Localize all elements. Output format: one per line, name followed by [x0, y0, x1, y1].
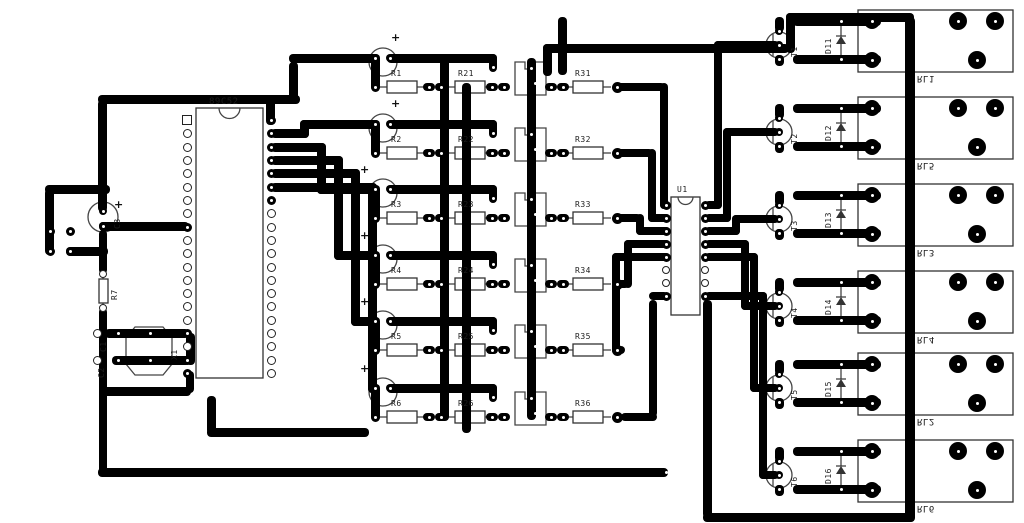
copper-trace: [705, 292, 767, 300]
copper-trace: [612, 253, 620, 354]
pad-hole: [840, 319, 843, 322]
resistor-body: [387, 344, 417, 356]
solder-pad: [371, 214, 380, 223]
resistor-label: R5: [391, 332, 402, 341]
solder-pad: [423, 83, 435, 91]
pad-hole: [840, 194, 843, 197]
solder-pad: [612, 213, 623, 224]
mcu-pin-pad: [183, 169, 192, 178]
copper-trace: [45, 189, 54, 255]
copper-trace: [617, 83, 665, 91]
copper-trace: [489, 54, 497, 72]
pad-hole: [840, 232, 843, 235]
relay-coil-pad: [864, 356, 880, 372]
resistor-label: R1: [391, 69, 402, 78]
pad-hole: [840, 58, 843, 61]
transistor-pad: [775, 302, 783, 310]
solder-pad: [545, 149, 557, 157]
copper-trace: [750, 253, 758, 392]
solder-pad: [99, 222, 107, 230]
mcu-pin-pad: [183, 209, 192, 218]
mcu-pin-pad: [267, 369, 276, 378]
relay-contact-pad: [949, 355, 967, 373]
solder-pad: [99, 207, 107, 215]
resistor-label: R21: [458, 69, 474, 78]
pad-hole: [534, 412, 537, 415]
pcb-layout: 89C52U1R7X1C1C2C3+R1R21R31+R2R22R32+R3R2…: [0, 0, 1024, 523]
relay-contact-pad: [968, 394, 986, 412]
relay-contact-pad: [949, 99, 967, 117]
relay-contact-pad: [968, 138, 986, 156]
solder-pad: [498, 149, 510, 157]
resistor-label: R35: [575, 332, 591, 341]
pad-hole: [534, 148, 537, 151]
solder-pad: [371, 54, 379, 62]
copper-trace: [527, 58, 536, 420]
resistor-body: [573, 81, 603, 93]
relay-contact-pad: [968, 481, 986, 499]
polarity-plus-mark: +: [114, 198, 123, 211]
diode-label: D12: [824, 125, 833, 141]
polarity-plus-mark: +: [360, 163, 369, 176]
transistor-pad: [775, 485, 783, 493]
resistor-label: R6: [391, 399, 402, 408]
relay-coil-pad: [864, 395, 880, 411]
relay-label: RL4: [917, 334, 935, 344]
copper-trace: [103, 387, 191, 396]
resistor-r7-label: R7: [110, 289, 119, 300]
copper-trace: [271, 156, 343, 165]
pad-hole: [530, 67, 533, 70]
solder-pad: [557, 83, 569, 91]
copper-trace: [387, 54, 497, 63]
crystal-pad: [114, 356, 122, 364]
mcu-pin-pad: [183, 356, 192, 365]
mcu-pin-pad: [267, 223, 276, 232]
solder-pad: [435, 413, 447, 421]
mcu-body: [196, 108, 263, 378]
pad-hole: [665, 471, 668, 474]
copper-trace: [98, 468, 668, 477]
solder-pad: [486, 280, 498, 288]
power-pad: [46, 247, 55, 256]
diode-label: D16: [824, 468, 833, 484]
relay-coil-pad: [864, 226, 880, 242]
copper-trace: [351, 169, 360, 326]
cap-c3-label: C3: [113, 218, 122, 229]
solder-pad: [371, 384, 379, 392]
resistor-body: [573, 212, 603, 224]
mcu-pin-pad: [183, 129, 192, 138]
polarity-plus-mark: +: [360, 229, 369, 242]
transistor-pad: [775, 142, 783, 150]
transistor-pad: [775, 457, 783, 465]
solder-pad: [557, 346, 569, 354]
polarity-plus-mark: +: [391, 31, 400, 44]
solder-pad: [498, 83, 510, 91]
solder-pad: [371, 280, 380, 289]
resistor-body: [573, 344, 603, 356]
u1-pin-pad: [701, 292, 710, 301]
transistor-pad: [775, 41, 783, 49]
mcu-pin-pad: [267, 156, 276, 165]
relay-contact-pad: [986, 355, 1004, 373]
solder-pad: [371, 120, 379, 128]
resistor-body: [573, 278, 603, 290]
solder-pad: [371, 317, 379, 325]
resistor-body: [387, 212, 417, 224]
copper-trace: [289, 62, 298, 104]
diode-label: D14: [824, 299, 833, 315]
mcu-pin-pad: [267, 316, 276, 325]
pad-hole: [530, 397, 533, 400]
solder-pad: [612, 148, 623, 159]
crystal-label: X1: [170, 349, 179, 360]
mcu-pin-pad: [267, 289, 276, 298]
mcu-pin-pad: [267, 249, 276, 258]
copper-trace: [387, 384, 497, 393]
cap-c2-pad: [93, 356, 102, 365]
power-pad: [66, 247, 75, 256]
mcu-pin-pad: [267, 263, 276, 272]
mcu-pin-pad: [183, 196, 192, 205]
polarity-plus-mark: +: [360, 295, 369, 308]
solder-pad: [371, 185, 379, 193]
solder-pad: [371, 149, 380, 158]
transistor-label: T3: [790, 220, 799, 231]
solder-pad: [486, 346, 498, 354]
solder-pad: [386, 120, 394, 128]
mcu-pin-pad: [267, 356, 276, 365]
pad-hole: [840, 20, 843, 23]
mcu-pin-pad: [183, 143, 192, 152]
u1-pin-pad: [662, 240, 671, 249]
diode-label: D15: [824, 381, 833, 397]
transistor-pad: [775, 128, 783, 136]
mcu-pin-pad: [267, 276, 276, 285]
u1-pin-pad: [662, 201, 671, 210]
copper-trace: [489, 317, 497, 335]
mcu-pin-pad: [267, 302, 276, 311]
mcu-pin-pad: [183, 156, 192, 165]
copper-trace: [714, 41, 722, 209]
relay-contact-pad: [986, 12, 1004, 30]
solder-pad: [486, 413, 498, 421]
polarity-plus-mark: +: [391, 97, 400, 110]
power-pad: [46, 227, 55, 236]
resistor-label: R3: [391, 200, 402, 209]
resistor-label: R31: [575, 69, 591, 78]
solder-pad: [371, 413, 380, 422]
mcu-pin1-pad: [182, 115, 192, 125]
solder-pad: [486, 149, 498, 157]
copper-trace: [732, 215, 779, 223]
transistor-label: T2: [790, 133, 799, 144]
crystal-pad: [114, 329, 122, 337]
copper-trace: [660, 83, 668, 209]
resistor-body: [573, 147, 603, 159]
solder-pad: [545, 413, 557, 421]
solder-pad: [386, 251, 394, 259]
pad-hole: [534, 345, 537, 348]
transistor-pad: [775, 55, 783, 63]
transistor-pad: [775, 201, 783, 209]
u1-pin-pad: [701, 201, 710, 210]
transistor-pad: [775, 114, 783, 122]
mcu-pin-pad: [183, 263, 192, 272]
transistor-pad: [775, 471, 783, 479]
solder-pad: [371, 346, 380, 355]
solder-pad: [498, 346, 510, 354]
relay-coil-pad: [864, 100, 880, 116]
solder-pad: [386, 54, 394, 62]
copper-trace: [440, 54, 449, 421]
copper-trace: [723, 128, 731, 222]
solder-pad: [545, 346, 557, 354]
relay-contact-pad: [949, 186, 967, 204]
resistor-label: R34: [575, 266, 591, 275]
resistor-label: R4: [391, 266, 402, 275]
transistor-pad: [775, 316, 783, 324]
copper-trace: [489, 120, 497, 138]
cap-c2-label: C2: [97, 367, 106, 378]
transistor-pad: [775, 27, 783, 35]
relay-coil-pad: [864, 13, 880, 29]
mcu-pin-pad: [267, 196, 276, 205]
relay-coil-pad: [864, 313, 880, 329]
diode-label: D13: [824, 212, 833, 228]
relay-contact-pad: [949, 273, 967, 291]
pad-hole: [530, 133, 533, 136]
mcu-pin-pad: [183, 302, 192, 311]
pad-hole: [373, 431, 376, 434]
copper-trace: [387, 120, 497, 129]
solder-pad: [423, 346, 435, 354]
resistor-body: [387, 411, 417, 423]
solder-pad: [557, 280, 569, 288]
relay-label: RL3: [917, 247, 935, 257]
mcu-pin-pad: [183, 329, 192, 338]
u1-pin-pad: [701, 214, 710, 223]
pad-hole: [492, 263, 495, 266]
copper-trace: [300, 120, 379, 129]
mcu-pin-pad: [183, 183, 192, 192]
pad-hole: [530, 264, 533, 267]
transistor-pad: [775, 288, 783, 296]
mcu-pin-pad: [183, 289, 192, 298]
relay-coil-pad: [864, 139, 880, 155]
power-pad: [66, 227, 75, 236]
relay-label: RL5: [917, 160, 935, 170]
solder-pad: [435, 149, 447, 157]
transistor-label: T5: [790, 389, 799, 400]
u1-pin-pad: [662, 279, 670, 287]
transistor-pad: [775, 384, 783, 392]
relay-contact-pad: [968, 225, 986, 243]
mcu-pin-pad: [267, 169, 276, 178]
solder-pad: [498, 280, 510, 288]
copper-trace: [387, 317, 497, 326]
crystal-pad: [146, 329, 154, 337]
mcu-pin-pad: [183, 316, 192, 325]
copper-trace: [489, 251, 497, 269]
solder-pad: [486, 214, 498, 222]
resistor-body: [573, 411, 603, 423]
pad-hole: [840, 401, 843, 404]
pad-hole: [492, 329, 495, 332]
solder-pad: [498, 413, 510, 421]
resistor-body: [387, 81, 417, 93]
mcu-pin-pad: [183, 249, 192, 258]
resistor-body: [387, 147, 417, 159]
u1-body: [671, 197, 700, 315]
u1-pin-pad: [662, 253, 671, 262]
solder-pad: [435, 346, 447, 354]
polarity-plus-mark: +: [360, 362, 369, 375]
copper-trace: [289, 54, 353, 63]
copper-trace: [271, 169, 360, 178]
copper-trace: [723, 128, 779, 136]
copper-trace: [489, 185, 497, 203]
copper-trace: [387, 185, 497, 194]
pad-hole: [530, 330, 533, 333]
copper-trace: [759, 292, 767, 479]
transistor-pad: [775, 215, 783, 223]
mcu-pin-pad: [183, 342, 192, 351]
copper-trace: [207, 428, 369, 437]
copper-trace: [99, 230, 107, 274]
solder-pad: [423, 413, 435, 421]
solder-pad: [435, 280, 447, 288]
pad-hole: [534, 279, 537, 282]
u1-label: U1: [677, 185, 688, 194]
u1-pin-pad: [701, 240, 710, 249]
solder-pad: [557, 214, 569, 222]
pad-hole: [530, 198, 533, 201]
copper-trace: [271, 183, 377, 192]
relay-contact-pad: [949, 12, 967, 30]
copper-trace: [905, 17, 915, 522]
relay-label: RL1: [917, 73, 935, 83]
u1-pin-pad: [662, 292, 671, 301]
relay-contact-pad: [986, 442, 1004, 460]
transistor-pad: [775, 229, 783, 237]
u1-pin-pad: [701, 279, 709, 287]
solder-pad: [423, 280, 435, 288]
resistor-label: R24: [458, 266, 474, 275]
resistor-label: R32: [575, 135, 591, 144]
resistor-label: R36: [575, 399, 591, 408]
solder-pad: [486, 83, 498, 91]
mcu-pin-pad: [267, 209, 276, 218]
relay-coil-pad: [864, 52, 880, 68]
solder-pad: [557, 149, 569, 157]
solder-pad: [545, 83, 557, 91]
solder-pad: [435, 214, 447, 222]
mcu-pin-pad: [267, 342, 276, 351]
copper-trace: [703, 513, 914, 522]
pad-hole: [492, 132, 495, 135]
solder-pad-hole: [99, 304, 107, 312]
solder-pad: [423, 214, 435, 222]
transistor-label: T6: [790, 476, 799, 487]
transistor-label: T1: [790, 46, 799, 57]
solder-pad: [612, 412, 623, 423]
pad-hole: [840, 145, 843, 148]
pad-hole: [492, 396, 495, 399]
relay-contact-pad: [949, 442, 967, 460]
relay-coil-pad: [864, 187, 880, 203]
cap-c1-label: C1: [99, 341, 108, 352]
mcu-pin-pad: [267, 329, 276, 338]
copper-trace: [98, 100, 107, 212]
mcu-pin-pad: [267, 129, 276, 138]
pad-hole: [840, 488, 843, 491]
u1-pin-pad: [701, 266, 709, 274]
u1-pin-pad: [662, 227, 671, 236]
relay-contact-pad: [986, 99, 1004, 117]
resistor-label: R26: [458, 399, 474, 408]
diode-label: D11: [824, 38, 833, 54]
u1-pin-pad: [662, 214, 671, 223]
crystal-pad: [146, 356, 154, 364]
copper-trace: [703, 300, 712, 518]
u1-pin-pad: [701, 253, 710, 262]
transistor-pad: [775, 370, 783, 378]
resistor-label: R22: [458, 135, 474, 144]
solder-pad: [371, 251, 379, 259]
mcu-pin-pad: [183, 369, 192, 378]
solder-pad: [612, 345, 623, 356]
mcu-pin-pad: [183, 276, 192, 285]
pad-hole: [492, 197, 495, 200]
copper-trace: [649, 300, 657, 417]
solder-pad: [386, 317, 394, 325]
resistor-r7-body: [99, 279, 108, 303]
resistor-label: R2: [391, 135, 402, 144]
solder-pad: [545, 280, 557, 288]
mcu-pin-pad: [267, 116, 276, 125]
cap-c1-pad: [93, 329, 102, 338]
copper-trace: [387, 251, 497, 260]
relay-contact-pad: [986, 273, 1004, 291]
solder-pad: [545, 214, 557, 222]
solder-pad: [612, 82, 623, 93]
relay-contact-pad: [968, 312, 986, 330]
mcu-pin-pad: [267, 236, 276, 245]
pad-hole: [840, 363, 843, 366]
pad-hole: [534, 82, 537, 85]
resistor-label: R33: [575, 200, 591, 209]
solder-pad: [435, 83, 447, 91]
resistor-body: [387, 278, 417, 290]
relay-label: RL6: [917, 503, 935, 513]
pad-hole: [534, 213, 537, 216]
pad-hole: [840, 450, 843, 453]
mcu-label: 89C52: [209, 97, 239, 107]
relay-coil-pad: [864, 274, 880, 290]
pad-hole: [840, 281, 843, 284]
transistor-label: T4: [790, 307, 799, 318]
resistor-label: R25: [458, 332, 474, 341]
mcu-pin-pad: [183, 236, 192, 245]
solder-pad: [612, 279, 623, 290]
relay-label: RL2: [917, 416, 935, 426]
mcu-pin-pad: [183, 223, 192, 232]
solder-pad: [386, 384, 394, 392]
copper-trace: [714, 41, 779, 49]
solder-pad-hole: [99, 270, 107, 278]
